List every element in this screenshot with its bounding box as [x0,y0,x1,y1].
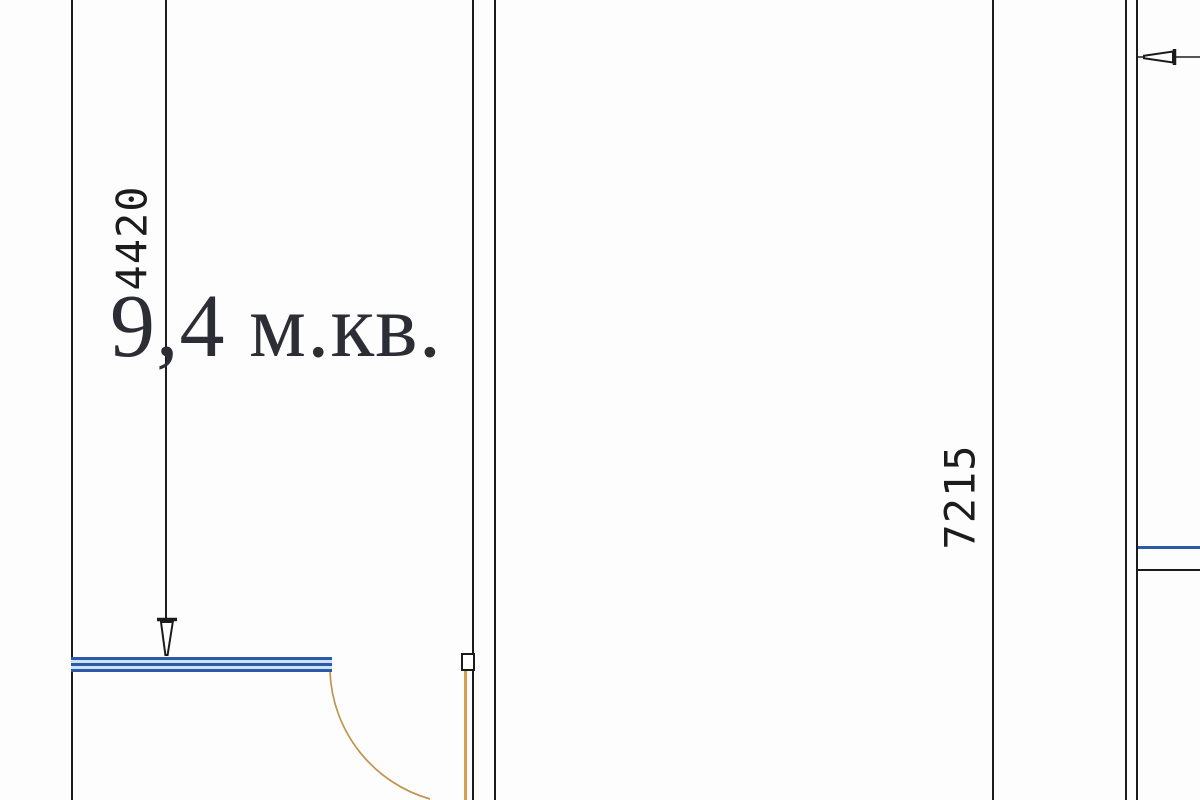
floor-plan-canvas: 4420 7215 9,4 м.кв. [0,0,1200,800]
dimension-arrow-down-icon [161,622,173,655]
door-swing-arc [330,672,430,799]
dimension-text-4420: 4420 [108,185,157,290]
dimension-text-7215: 7215 [936,444,985,549]
dimension-arrow-left-icon [1144,52,1173,63]
plan-overlay [0,0,1200,800]
room-area-label: 9,4 м.кв. [110,282,442,372]
